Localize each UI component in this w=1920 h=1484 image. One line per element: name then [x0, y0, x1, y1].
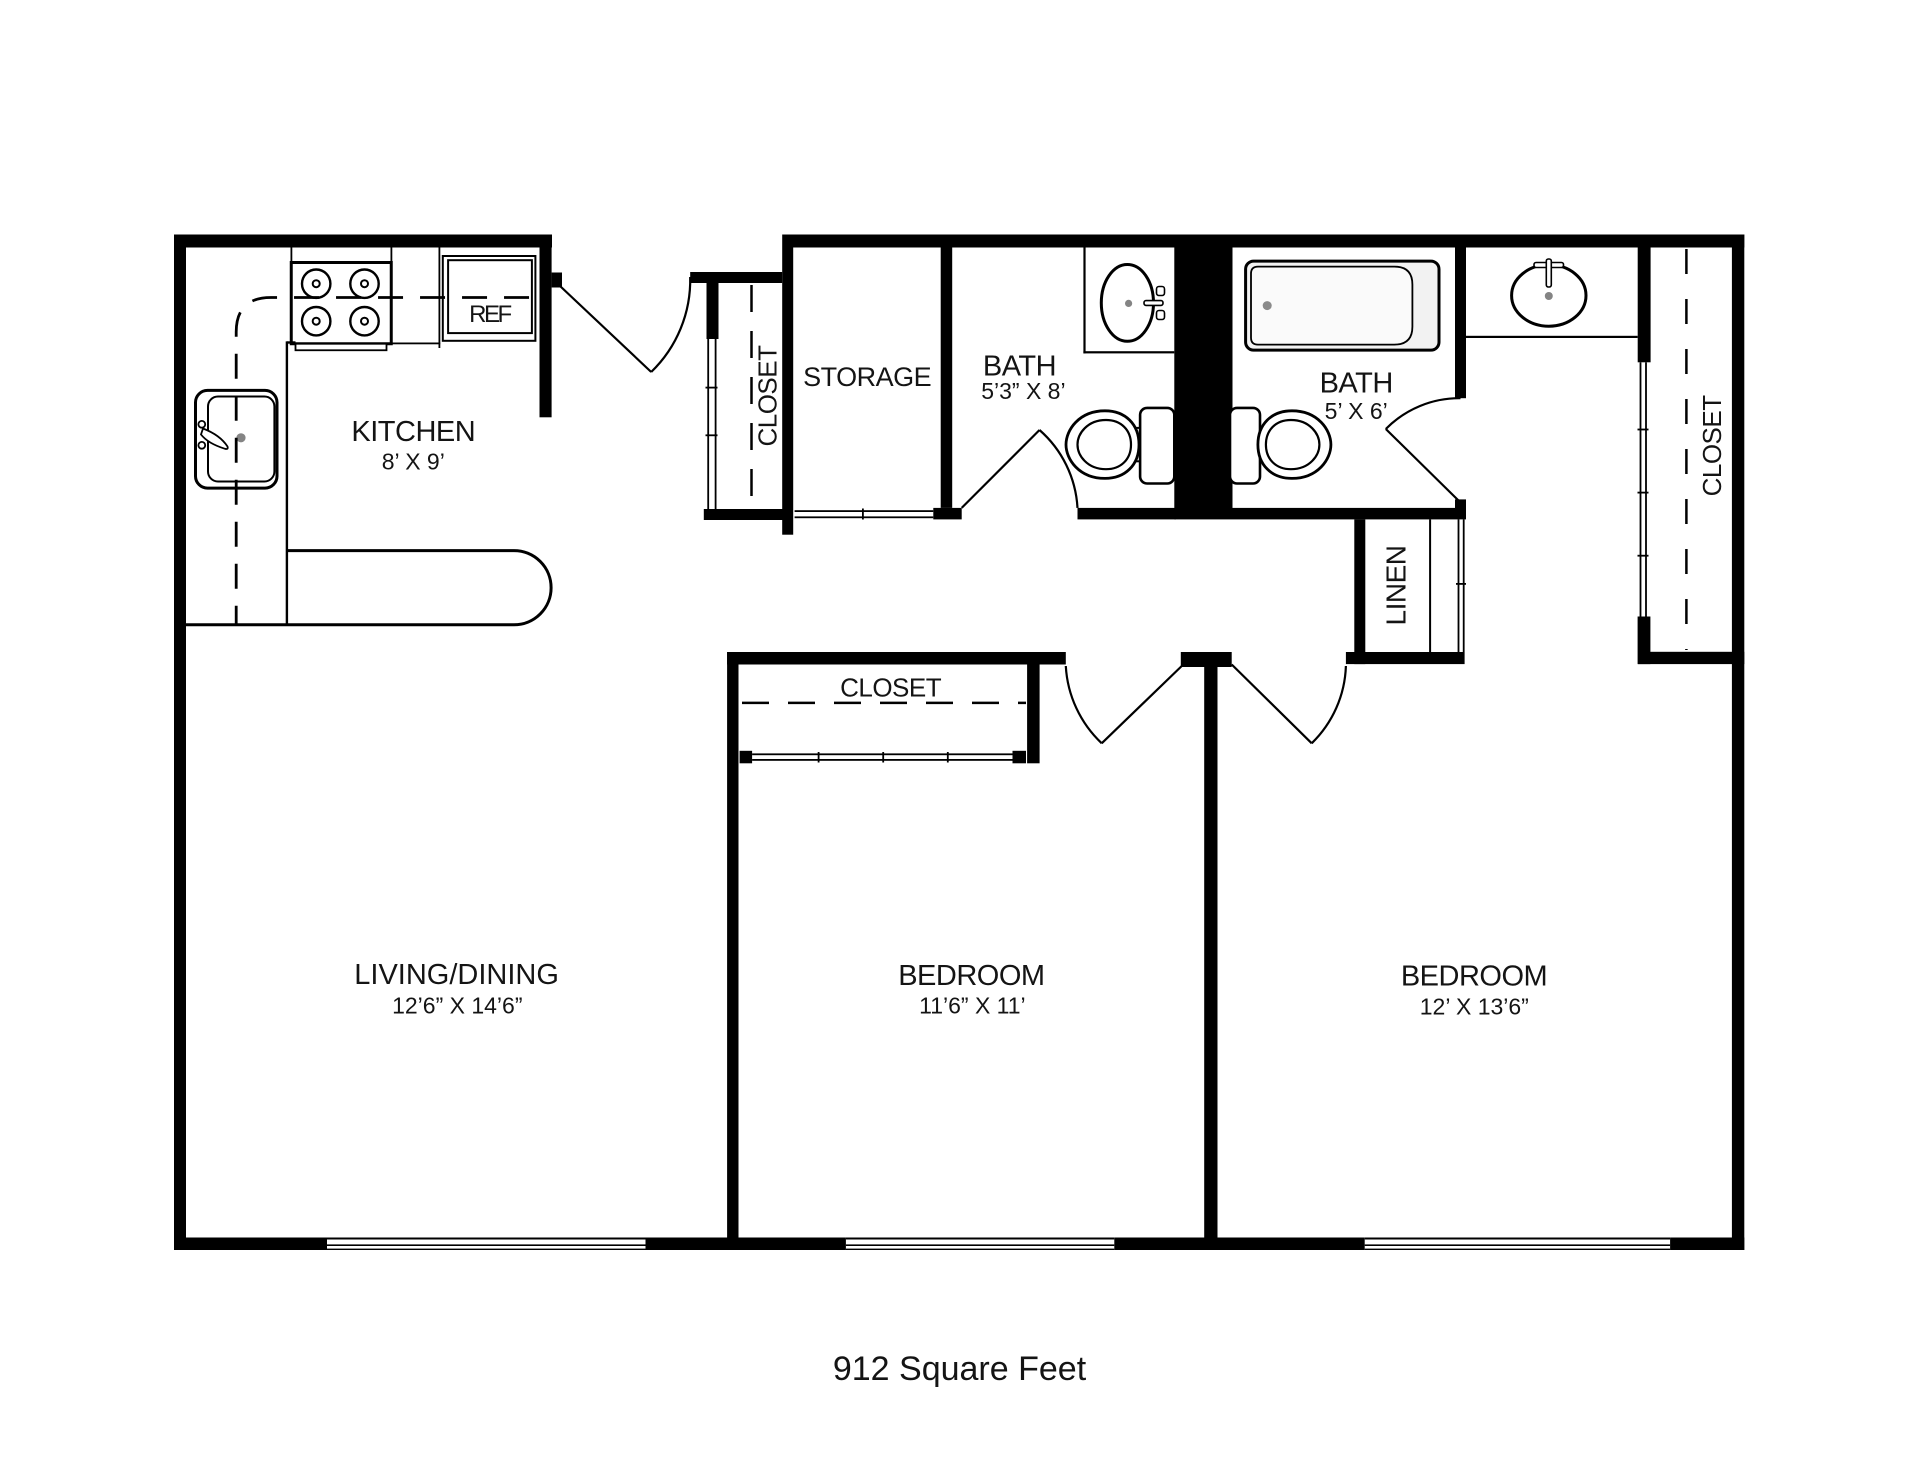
svg-text:912 Square Feet: 912 Square Feet — [833, 1350, 1087, 1388]
svg-text:KITCHEN: KITCHEN — [351, 416, 475, 448]
svg-text:12’ X 13’6”: 12’ X 13’6” — [1420, 994, 1529, 1020]
svg-text:LIVING/DINING: LIVING/DINING — [354, 959, 559, 991]
svg-text:LINEN: LINEN — [1381, 546, 1412, 626]
svg-text:REF: REF — [469, 301, 511, 328]
svg-text:5’3” X 8’: 5’3” X 8’ — [981, 378, 1065, 404]
svg-text:12’6” X 14’6”: 12’6” X 14’6” — [392, 993, 522, 1019]
svg-text:BEDROOM: BEDROOM — [1401, 960, 1547, 992]
svg-text:BATH: BATH — [1320, 367, 1393, 399]
svg-text:STORAGE: STORAGE — [803, 362, 931, 392]
svg-text:CLOSET: CLOSET — [1697, 395, 1727, 497]
svg-text:5’ X 6’: 5’ X 6’ — [1325, 398, 1388, 424]
svg-text:CLOSET: CLOSET — [753, 345, 783, 447]
svg-text:8’ X 9’: 8’ X 9’ — [382, 449, 445, 475]
svg-text:11’6” X 11’: 11’6” X 11’ — [919, 992, 1026, 1018]
svg-text:BEDROOM: BEDROOM — [898, 960, 1044, 992]
svg-text:CLOSET: CLOSET — [840, 673, 942, 703]
